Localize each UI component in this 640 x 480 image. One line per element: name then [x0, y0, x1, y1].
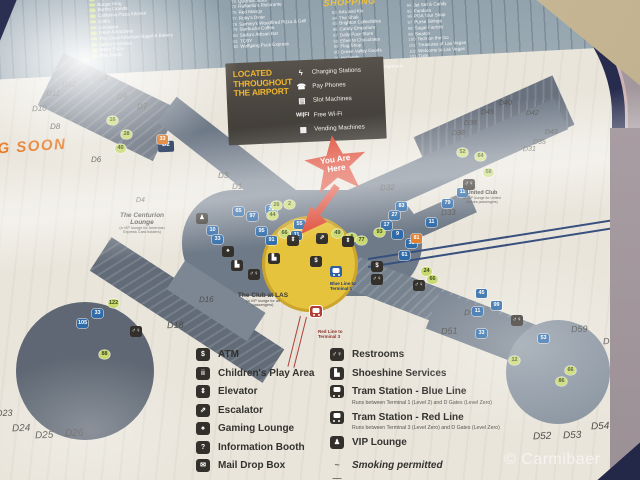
legend-label: Children's Play Area — [218, 368, 315, 379]
gate-label: D24 — [12, 423, 31, 435]
venue-bullet — [89, 0, 95, 1]
frame-edge-right — [610, 128, 640, 480]
boot-icon: ▙ — [231, 260, 243, 271]
gate-label: D31 — [523, 146, 536, 153]
legend-row: ⇗Escalator — [196, 404, 346, 417]
legend-row: ♟VIP Lounge — [330, 436, 520, 449]
located-item-label: Pay Phones — [312, 81, 346, 89]
located-throughout-airport-box: LOCATED THROUGHOUT THE AIRPORT ϟCharging… — [225, 57, 386, 146]
legend-label: Smoking permitted — [352, 460, 443, 471]
map-badge: 33 — [92, 309, 103, 318]
map-badge: 11 — [472, 307, 483, 316]
gate-label: D59 — [571, 324, 588, 335]
legend-sublabel: Runs between Terminal 1 (Level 2) and D … — [352, 400, 520, 406]
club-at-las-label: The Club at LAS (a VIP lounge for all pa… — [226, 292, 300, 308]
map-badge: 64 — [475, 152, 486, 161]
gate-label: D45 — [481, 109, 494, 116]
map-badge: 10 — [207, 226, 218, 235]
map-badge: 65 — [233, 207, 244, 216]
restroom-icon: ♂♀ — [330, 348, 344, 361]
gate-label: D3 — [218, 171, 229, 180]
venue-bullet — [92, 49, 98, 53]
map-badge: 33 — [476, 329, 487, 338]
map-badge: 16 — [107, 116, 118, 125]
charging-icon: ϟ — [290, 67, 312, 77]
gate-label: D8 — [50, 122, 61, 131]
dining-list-col-a: Baja Fresh ExpressBurger KingBurrito Gra… — [89, 0, 174, 59]
concourse-paddle-southeast — [506, 320, 610, 424]
map-badge: 93 — [374, 228, 385, 237]
restroom-icon: ♂♀ — [248, 269, 260, 280]
gate-label: D12 — [62, 80, 77, 90]
tram-station-blue-icon — [330, 266, 342, 277]
map-badge: 45 — [476, 289, 487, 298]
venue-number: 83 — [332, 10, 337, 15]
elev-icon: ⇕ — [287, 235, 299, 246]
venue-bullet — [90, 20, 96, 24]
restroom-icon: ♂♀ — [371, 274, 383, 285]
venue-bullet — [90, 26, 96, 30]
located-item-label: Charging Stations — [312, 66, 361, 75]
gate-label: D43 — [545, 129, 558, 136]
gate-label: D16 — [199, 295, 214, 305]
venue-bullet — [91, 31, 97, 35]
restroom-icon: ♂♀ — [463, 179, 475, 190]
gate-label: D11 — [46, 89, 60, 98]
restroom-icon: ♂♀ — [511, 315, 523, 326]
restroom-icon: ♂♀ — [130, 326, 142, 337]
legend-label: ATM — [218, 349, 239, 360]
venue-number: 75 — [231, 4, 236, 9]
venue-bullet — [89, 9, 95, 13]
venue-number: 86 — [333, 27, 338, 32]
venue-number: 80 — [233, 33, 238, 38]
map-badge: 81 — [411, 234, 422, 243]
gate-label: D7 — [137, 102, 148, 111]
venue-bullet — [89, 3, 95, 7]
map-badge: 86 — [556, 377, 567, 386]
you-are-here-arrow — [297, 184, 343, 236]
gate-label: D54 — [591, 421, 610, 433]
map-badge: 105 — [77, 319, 88, 328]
venue-bullet — [91, 37, 97, 41]
map-badge: 95 — [256, 227, 267, 236]
mail-icon: ✉ — [196, 459, 210, 472]
gate-label: D23 — [0, 408, 13, 419]
children-icon: ii — [196, 367, 210, 380]
venue-number: 100 — [408, 37, 415, 42]
venue-number: 99 — [408, 31, 413, 36]
gate-label: D53 — [563, 430, 582, 442]
gate-label: D1 — [232, 182, 243, 191]
centurion-lounge-label: The Centurion Lounge (a VIP lounge for A… — [96, 212, 188, 235]
venue-number: 97 — [407, 20, 412, 25]
gate-label: D32 — [380, 183, 395, 193]
smoking-icon: ~— — [330, 459, 344, 472]
legend-row: ♂♀Restrooms — [330, 348, 520, 361]
located-item-label: Slot Machines — [313, 95, 352, 104]
legend-label: Escalator — [218, 405, 263, 416]
venue-bullet — [91, 43, 97, 47]
venue-number: 85 — [332, 21, 337, 26]
gate-label: D6 — [91, 155, 102, 164]
united-club-label: United Club (a VIP lounge for United Air… — [450, 190, 514, 204]
venue-bullet — [92, 54, 98, 58]
coming-soon-label: COMING SOON — [0, 136, 67, 162]
legend-label: Elevator — [218, 386, 257, 397]
legend-label: Gaming Lounge — [218, 423, 294, 434]
elev-icon: ⇕ — [196, 385, 210, 398]
legend-label: Tram Station - Red Line — [352, 412, 464, 423]
map-badge: 33 — [157, 135, 168, 144]
legend-label: Mail Drop Box — [218, 460, 285, 471]
vending-icon: ▦ — [292, 125, 314, 135]
map-badge: 44 — [267, 211, 278, 220]
gate-label: D4 — [136, 197, 145, 204]
legend-row: ♠Gaming Lounge — [196, 422, 346, 435]
venue-bullet — [90, 14, 96, 18]
map-badge: 26 — [271, 201, 282, 210]
gate-label: D14 — [93, 74, 108, 84]
gate-label: D33 — [441, 208, 456, 218]
tram-station-red-icon — [310, 306, 322, 317]
gate-label: D52 — [533, 431, 552, 443]
tram-station-blue-icon — [330, 385, 344, 398]
legend-label: VIP Lounge — [352, 437, 407, 448]
map-badge: 91 — [266, 236, 277, 245]
map-badge: 88 — [99, 350, 110, 359]
legend-column-left: $ATMiiChildren's Play Area⇕Elevator⇗Esca… — [196, 348, 346, 478]
gate-label: D26 — [65, 428, 84, 440]
map-badge: 66 — [427, 275, 438, 284]
venue-number: 101 — [409, 42, 416, 47]
located-box-items: ϟCharging Stations☎Pay Phones▤Slot Machi… — [289, 62, 382, 138]
map-badge: 66 — [565, 366, 576, 375]
venue-number: 82 — [234, 44, 239, 49]
legend-row: ▙Shoeshine Services — [330, 367, 520, 380]
legend-row: ⇕Elevator — [196, 385, 346, 398]
photo-watermark: © Carmibaer — [504, 451, 600, 469]
venue-number: 89 — [334, 44, 339, 49]
legend-row: $ATM — [196, 348, 346, 361]
located-item-label: Free Wi-Fi — [313, 110, 342, 118]
red-line-callout: Red Line to Terminal 3 — [318, 329, 343, 339]
located-item-label: Vending Machines — [314, 124, 365, 133]
escal-icon: ⇗ — [196, 404, 210, 417]
legend-row: ✉Mail Drop Box — [196, 459, 346, 472]
map-badge: 27 — [389, 211, 400, 220]
venue-number: 94 — [407, 3, 412, 8]
map-badge: 83 — [396, 202, 407, 211]
gate-label: D9 — [117, 92, 128, 101]
map-badge: 28 — [121, 130, 132, 139]
gate-label: D51 — [441, 326, 458, 337]
map-badge: 52 — [457, 148, 468, 157]
venue-number: 79 — [233, 27, 238, 32]
map-badge: 53 — [538, 334, 549, 343]
legend-label: Shoeshine Services — [352, 368, 447, 379]
venue-number: 98 — [408, 25, 413, 30]
gaming-icon: ♠ — [196, 422, 210, 435]
info-icon: ? — [196, 441, 210, 454]
dining-list-col-b: 73Pick of Siam74Quiznos Subs75Raffaello'… — [231, 0, 308, 50]
map-badge: 61 — [399, 251, 410, 260]
gaming-icon: ♠ — [222, 246, 234, 257]
legend-label: Information Booth — [218, 442, 305, 453]
boot-icon: ▙ — [330, 367, 344, 380]
gate-label: D38 — [452, 130, 465, 137]
airport-terminal-map-photo: Baja Fresh ExpressBurger KingBurrito Gra… — [0, 0, 640, 480]
venue-number: 96 — [407, 14, 412, 19]
map-badge: 2 — [284, 200, 295, 209]
map-badge: 40 — [115, 144, 126, 153]
vip-icon: ♟ — [330, 436, 344, 449]
map-badge: 99 — [491, 301, 502, 310]
legend-row: ?Information Booth — [196, 441, 346, 454]
legend-row: iiChildren's Play Area — [196, 367, 346, 380]
gate-label: D25 — [35, 430, 54, 442]
atm-icon: $ — [196, 348, 210, 361]
tram-station-red-icon — [330, 411, 344, 424]
atm-icon: $ — [310, 256, 322, 267]
venue-number: 77 — [232, 16, 237, 21]
gate-label: D18 — [167, 320, 184, 331]
legend-label: Tram Station - Blue Line — [352, 386, 466, 397]
slots-icon: ▤ — [291, 96, 313, 106]
legend-row: Tram Station - Red Line — [330, 411, 520, 424]
venue-number: 88 — [333, 38, 338, 43]
atm-icon: $ — [371, 261, 383, 272]
gate-label: D10 — [32, 104, 47, 114]
restroom-icon: ♂♀ — [413, 280, 425, 291]
venue-number: 87 — [333, 32, 338, 37]
shopping-list-col-b: 94Jet Set & Candy95Pandora96PGA Tour Sho… — [407, 0, 467, 60]
blue-line-callout: Blue Line to Terminal 1 — [330, 281, 356, 291]
venue-number: 78 — [232, 21, 237, 26]
map-badge: 58 — [483, 168, 494, 177]
gate-label: D42 — [526, 110, 539, 117]
venue-number: 76 — [232, 10, 237, 15]
venue-number: 103 — [409, 54, 416, 59]
gate-label: D40 — [499, 100, 512, 107]
map-badge: 122 — [108, 299, 119, 308]
boot-icon: ▙ — [268, 253, 280, 264]
legend-sublabel: Runs between Terminal 3 (Level Zero) and… — [352, 425, 520, 431]
located-box-title: LOCATED THROUGHOUT THE AIRPORT — [233, 68, 293, 99]
gate-label: D36 — [464, 120, 477, 127]
vip-icon: ♟ — [196, 213, 208, 224]
phone-icon: ☎ — [290, 82, 312, 92]
legend-row: Tram Station - Blue Line — [330, 385, 520, 398]
legend-label: Restrooms — [352, 349, 404, 360]
legend-row: ~—Smoking permitted — [330, 459, 520, 472]
map-badge: 77 — [356, 236, 367, 245]
map-badge: 11 — [426, 218, 437, 227]
map-badge: 33 — [212, 235, 223, 244]
wifi-icon: WI|FI — [292, 112, 314, 119]
map-sheet: Baja Fresh ExpressBurger KingBurrito Gra… — [0, 0, 612, 480]
map-badge: 97 — [247, 212, 258, 221]
elev-icon: ⇕ — [342, 236, 354, 247]
legend-column-right: ♂♀Restrooms▙Shoeshine ServicesTram Stati… — [330, 348, 520, 478]
venue-number: 90 — [334, 49, 339, 54]
map-badge: 9 — [392, 230, 403, 239]
located-item: ▦Vending Machines — [292, 119, 383, 137]
